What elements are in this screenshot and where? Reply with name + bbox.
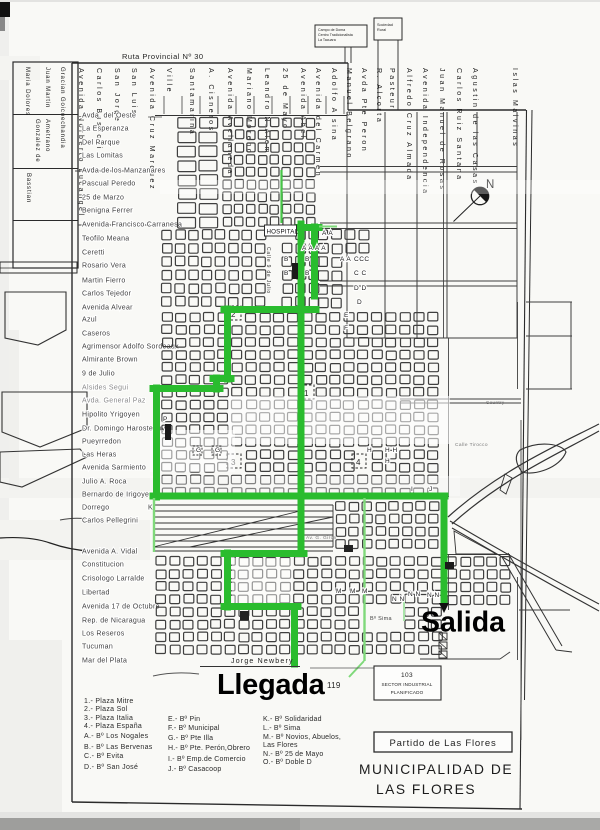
- svg-text:N N: N N: [392, 596, 405, 603]
- svg-text:Las Heras: Las Heras: [82, 452, 117, 459]
- svg-text:Avenida Alvear: Avenida Alvear: [82, 305, 133, 312]
- svg-text:103: 103: [401, 672, 413, 679]
- svg-text:Bernardo de Irigoyen: Bernardo de Irigoyen: [82, 492, 153, 499]
- svg-text:CCC: CCC: [354, 256, 370, 263]
- svg-text:Country: Country: [486, 400, 505, 405]
- svg-text:N N: N N: [408, 591, 421, 598]
- svg-text:9 de Julio: 9 de Julio: [82, 371, 115, 378]
- svg-text:E.- Bº Pin: E.- Bº Pin: [168, 716, 200, 723]
- svg-text:G: G: [215, 447, 221, 454]
- svg-text:HOSPITAL: HOSPITAL: [267, 229, 299, 236]
- svg-text:Llegada: Llegada: [217, 669, 326, 701]
- svg-text:Ametrano: Ametrano: [44, 119, 50, 152]
- svg-text:A A A A: A A A A: [302, 245, 326, 252]
- svg-text:Los Reseros: Los Reseros: [82, 631, 125, 638]
- svg-text:Sociedad: Sociedad: [377, 23, 393, 27]
- svg-text:Avda de los Manzanares: Avda de los Manzanares: [82, 168, 166, 175]
- svg-text:E: E: [344, 312, 349, 319]
- svg-text:Av. G. Giron: Av. G. Giron: [306, 535, 337, 541]
- svg-text:Santamarina: Santamarina: [188, 68, 195, 136]
- svg-text:Del Parque: Del Parque: [82, 140, 120, 147]
- svg-text:D D: D D: [354, 285, 367, 292]
- svg-text:Basstian: Basstian: [25, 173, 31, 203]
- svg-text:C.- Bº Evita: C.- Bº Evita: [84, 753, 124, 760]
- svg-text:B: B: [284, 270, 289, 277]
- svg-text:Azul: Azul: [82, 317, 97, 324]
- svg-text:Avenida Abel: Avenida Abel: [299, 68, 306, 140]
- svg-text:M: M: [362, 588, 368, 595]
- svg-text:G: G: [196, 447, 202, 454]
- svg-text:Alsides Segui: Alsides Segui: [82, 385, 128, 392]
- svg-text:Las Flores: Las Flores: [263, 742, 298, 749]
- svg-text:3.- Plaza Italia: 3.- Plaza Italia: [84, 715, 133, 722]
- svg-text:L.- Bº Sima: L.- Bº Sima: [263, 725, 300, 732]
- svg-text:119: 119: [327, 681, 341, 690]
- svg-text:Campo de Doma: Campo de Doma: [318, 28, 345, 32]
- svg-text:Mar del Plata: Mar del Plata: [82, 658, 127, 665]
- svg-text:Almirante Brown: Almirante Brown: [82, 357, 138, 364]
- svg-text:Adolfo Alsina: Adolfo Alsina: [330, 68, 337, 142]
- svg-text:Ceretti: Ceretti: [82, 250, 105, 257]
- svg-text:4.- Plaza España: 4.- Plaza España: [84, 723, 142, 730]
- svg-text:A.- Bº Los Nogales: A.- Bº Los Nogales: [84, 733, 149, 740]
- svg-text:Avenida Francisco Carranesa: Avenida Francisco Carranesa: [82, 222, 182, 229]
- svg-text:Salida: Salida: [421, 607, 506, 639]
- svg-text:G.- Bº Pte Illa: G.- Bº Pte Illa: [168, 735, 213, 742]
- svg-text:M.- Bº Novios, Abuelos,: M.- Bº Novios, Abuelos,: [263, 734, 341, 741]
- svg-text:Centro Tradicionalista: Centro Tradicionalista: [318, 33, 353, 37]
- svg-text:N N: N N: [427, 592, 440, 599]
- svg-text:Jorge Newbery: Jorge Newbery: [231, 658, 294, 665]
- svg-text:A. Cisneros: A. Cisneros: [207, 68, 214, 133]
- svg-text:La Tacuara: La Tacuara: [318, 38, 336, 42]
- svg-text:Dorrego: Dorrego: [82, 505, 109, 512]
- svg-text:H: H: [367, 447, 372, 454]
- svg-text:Mariano Moreno: Mariano Moreno: [245, 68, 252, 155]
- svg-text:B: B: [305, 270, 310, 277]
- svg-text:Avda. del Oeste: Avda. del Oeste: [82, 113, 136, 120]
- svg-text:H.- Bº Pte. Perón,Obrero: H.- Bº Pte. Perón,Obrero: [168, 745, 250, 752]
- svg-text:2.- Plaza Sol: 2.- Plaza Sol: [84, 706, 128, 713]
- svg-text:D: D: [357, 299, 362, 306]
- svg-text:Ruta Provincial Nº 30: Ruta Provincial Nº 30: [122, 52, 204, 61]
- svg-text:Juan Martin: Juan Martin: [44, 67, 50, 108]
- svg-text:Julio A. Roca: Julio A. Roca: [82, 479, 127, 486]
- svg-text:Rep. de Nicaragua: Rep. de Nicaragua: [82, 618, 145, 625]
- svg-text:H H: H H: [385, 447, 398, 454]
- svg-text:Caseros: Caseros: [82, 331, 110, 338]
- svg-text:Martin Fierro: Martin Fierro: [82, 278, 126, 285]
- svg-text:Avda Pte Peron: Avda Pte Peron: [360, 68, 367, 153]
- svg-text:P: P: [163, 416, 168, 423]
- svg-text:Ville: Ville: [165, 68, 172, 94]
- svg-text:H: H: [385, 458, 390, 465]
- svg-text:B.- Bº Las Bervenas: B.- Bº Las Bervenas: [84, 744, 153, 751]
- svg-text:San Luis: San Luis: [130, 68, 137, 116]
- svg-text:Carlos Pellegrini: Carlos Pellegrini: [82, 518, 138, 525]
- svg-text:Avenida Sarmiento: Avenida Sarmiento: [82, 465, 146, 472]
- svg-text:Benigna Ferrer: Benigna Ferrer: [82, 208, 133, 215]
- svg-text:Avenida 17 de Octubre: Avenida 17 de Octubre: [82, 604, 160, 611]
- svg-text:I: I: [411, 486, 413, 493]
- svg-text:MUNICIPALIDAD DE: MUNICIPALIDAD DE: [359, 762, 513, 777]
- svg-text:F: F: [344, 325, 348, 332]
- svg-text:B: B: [284, 256, 289, 263]
- svg-text:LAS FLORES: LAS FLORES: [376, 782, 476, 797]
- svg-text:25 de Mayo: 25 de Mayo: [281, 68, 288, 131]
- svg-text:B: B: [305, 256, 310, 263]
- svg-text:A A: A A: [322, 230, 333, 237]
- svg-text:Carlos Ruiz Santana: Carlos Ruiz Santana: [455, 68, 462, 182]
- svg-text:J: J: [429, 486, 433, 493]
- svg-text:Pueyrredon: Pueyrredon: [82, 439, 121, 446]
- svg-text:Bº Sima: Bº Sima: [370, 615, 392, 622]
- svg-text:SECTOR INDUSTRIAL: SECTOR INDUSTRIAL: [381, 682, 432, 687]
- svg-text:Rural: Rural: [377, 28, 386, 32]
- svg-text:Alfredo Cruz Almada: Alfredo Cruz Almada: [405, 68, 412, 182]
- svg-text:C C: C C: [354, 270, 367, 277]
- svg-text:Manuel Belgrano: Manuel Belgrano: [345, 68, 352, 160]
- svg-text:Teofilo Meana: Teofilo Meana: [82, 236, 129, 243]
- svg-text:Pascual Peredo: Pascual Peredo: [82, 181, 136, 188]
- svg-text:M: M: [336, 588, 342, 595]
- svg-text:Avda. General Paz: Avda. General Paz: [82, 398, 146, 405]
- svg-text:D.- Bº San José: D.- Bº San José: [84, 764, 138, 771]
- svg-text:I.- Bº Emp.de Comercio: I.- Bº Emp.de Comercio: [168, 756, 246, 763]
- svg-text:Calle Tirocco: Calle Tirocco: [455, 442, 488, 448]
- svg-text:Constitucion: Constitucion: [82, 562, 124, 569]
- svg-text:Crisologo Larralde: Crisologo Larralde: [82, 576, 145, 583]
- svg-text:1.- Plaza Mitre: 1.- Plaza Mitre: [84, 698, 134, 705]
- svg-text:Carlos Tejedor: Carlos Tejedor: [82, 291, 132, 298]
- svg-text:Leandro N.Alem: Leandro N.Alem: [263, 68, 270, 155]
- svg-text:J.- Bº Casacoop: J.- Bº Casacoop: [168, 766, 221, 773]
- svg-text:Avenida A. Vidal: Avenida A. Vidal: [82, 549, 138, 556]
- svg-text:Gonzalez de: Gonzalez de: [34, 119, 40, 163]
- svg-text:Maria Dolores: Maria Dolores: [24, 67, 30, 116]
- svg-text:25 de Marzo: 25 de Marzo: [82, 195, 124, 202]
- svg-text:Rosario Vera: Rosario Vera: [82, 263, 126, 270]
- svg-text:Libertad: Libertad: [82, 590, 110, 597]
- svg-text:Calle 9 de Julio: Calle 9 de Julio: [265, 247, 271, 294]
- svg-text:A A: A A: [340, 256, 351, 263]
- svg-text:Las Lomitas: Las Lomitas: [82, 153, 123, 160]
- svg-text:Avenida Independencia: Avenida Independencia: [421, 68, 428, 196]
- svg-text:R. Alcorta: R. Alcorta: [375, 68, 382, 124]
- svg-text:La Esperanza: La Esperanza: [82, 126, 129, 133]
- svg-text:PLANIFICADO: PLANIFICADO: [391, 690, 424, 695]
- svg-text:N.- Bº 25 de Mayo: N.- Bº 25 de Mayo: [263, 751, 323, 758]
- svg-text:F.- Bº Municipal: F.- Bº Municipal: [168, 725, 220, 732]
- svg-text:Pasteur: Pasteur: [388, 68, 395, 110]
- svg-text:Partido de Las Flores: Partido de Las Flores: [389, 738, 496, 749]
- svg-text:Juan Manuel de Rosas: Juan Manuel de Rosas: [438, 68, 445, 192]
- svg-text:Tucuman: Tucuman: [82, 644, 113, 651]
- svg-text:4: 4: [356, 458, 361, 467]
- svg-text:K.- Bº Solidaridad: K.- Bº Solidaridad: [263, 716, 322, 723]
- svg-text:K: K: [148, 505, 153, 512]
- svg-text:Gracian Goicoechandia: Gracian Goicoechandia: [59, 67, 65, 149]
- svg-text:O.- Bº Doble D: O.- Bº Doble D: [263, 759, 312, 766]
- svg-text:M: M: [350, 588, 356, 595]
- svg-text:Hipolito Yrigoyen: Hipolito Yrigoyen: [82, 412, 140, 419]
